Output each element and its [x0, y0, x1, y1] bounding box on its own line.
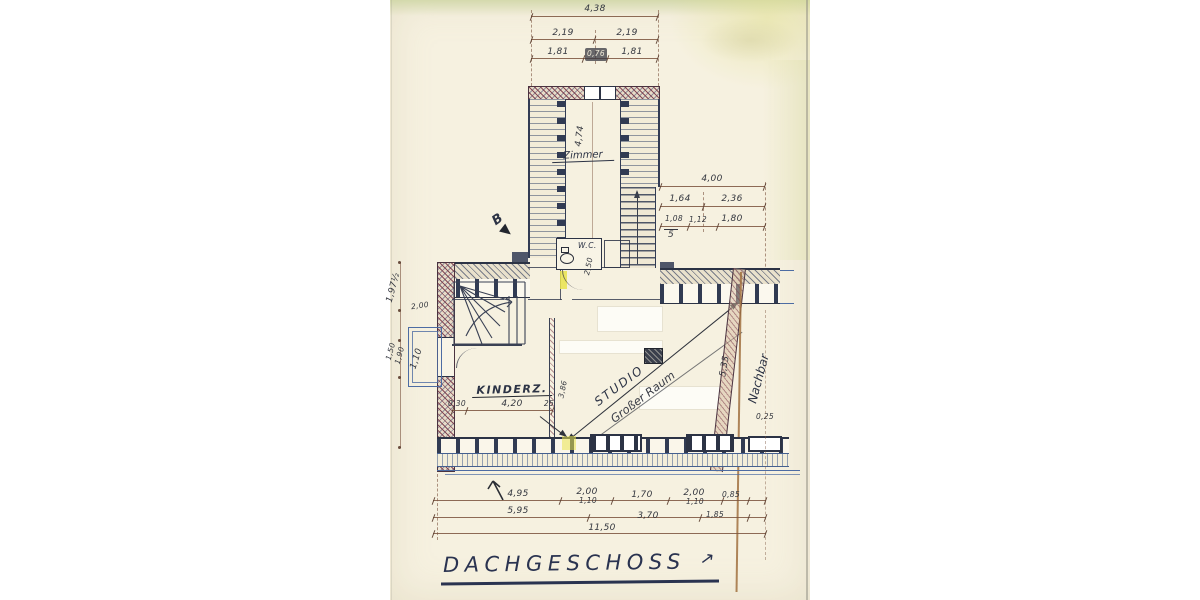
- guide-line: [658, 10, 659, 86]
- stair-stringer-line: [452, 344, 522, 346]
- stair-direction-arrow: [634, 190, 640, 198]
- dim-label: 1,80: [716, 214, 748, 224]
- guide-line: [531, 10, 532, 86]
- interior-wall-line: [528, 299, 562, 300]
- partition-wall: [549, 318, 555, 437]
- dim-label: 4,38: [575, 4, 615, 14]
- wall-line-ext: [780, 303, 794, 304]
- dim-label: 4,95: [498, 489, 538, 499]
- wall-line-ext: [780, 270, 794, 271]
- knee-wall-posts: [621, 101, 629, 185]
- dim-label: 2,19: [607, 28, 647, 38]
- knee-wall-posts: [557, 101, 565, 256]
- guide-line: [437, 474, 438, 540]
- stair-walk-line: [637, 192, 638, 264]
- dim-label: 1,70: [626, 490, 658, 500]
- drawing-title: DACHGESCHOSS: [443, 549, 723, 577]
- dim-label: 4,00: [692, 174, 732, 184]
- winder-stair: [452, 280, 526, 346]
- closet: [604, 240, 630, 268]
- dim-label: 1,10: [680, 498, 710, 506]
- dim-dot: [398, 309, 401, 312]
- dim-dot: [398, 261, 401, 264]
- dim-line-top-total: [531, 16, 658, 17]
- dim-label: 0,76: [584, 50, 608, 58]
- dim-label: 0,85: [716, 491, 746, 499]
- dim-label: 2,19: [543, 28, 583, 38]
- dim-label: 5,95: [498, 506, 538, 516]
- north-wall-hatch-right: [660, 268, 780, 284]
- dim-line-right-total: [660, 186, 765, 187]
- interior-wall-line: [452, 299, 504, 300]
- room-label-wc: W.C.: [578, 241, 597, 250]
- south-window-group: [590, 434, 642, 452]
- dim-label: 1,64: [662, 194, 698, 204]
- toilet-bowl: [560, 253, 574, 264]
- dim-label: 3,70: [630, 511, 666, 521]
- dim-label: 0,30: [446, 400, 468, 408]
- scan-stain: [700, 18, 800, 63]
- north-wall-windows-right: [660, 284, 780, 304]
- wing-window: [584, 86, 616, 100]
- dim-label: 1,85: [700, 511, 730, 519]
- south-window-group: [686, 434, 734, 452]
- dim-note: 5: [664, 229, 678, 240]
- guide-line: [765, 182, 766, 282]
- room-label-zimmer: Zimmer: [552, 149, 614, 163]
- dim-line-right-row3: [660, 226, 765, 227]
- south-roof-rafters: [437, 453, 789, 467]
- interior-wall-line: [572, 299, 662, 300]
- window-mullion: [599, 87, 601, 99]
- dim-label: 1,10: [573, 497, 603, 505]
- scan-tint-right: [762, 60, 810, 260]
- eaves-line: [437, 470, 800, 471]
- dim-line-bottom-total: [433, 533, 766, 534]
- guide-line: [765, 310, 766, 560]
- dim-line-right-row2: [660, 206, 765, 207]
- dim-label: 4,20: [492, 399, 532, 409]
- room-label-kinderzimmer: KINDERZ.: [472, 382, 552, 398]
- dim-line-kinder: [452, 410, 553, 411]
- eaves-line-2: [445, 474, 800, 475]
- dim-label: 1,12: [684, 216, 712, 224]
- dim-label: 2,36: [714, 194, 750, 204]
- dim-line-top-halves: [531, 39, 658, 40]
- whiteout-patch: [598, 307, 662, 331]
- dim-label: 1,81: [538, 47, 578, 57]
- title-arrow: ↗: [699, 548, 716, 570]
- dim-dot: [398, 376, 401, 379]
- dim-label: 1,81: [612, 47, 652, 57]
- dim-label: 11,50: [580, 523, 624, 533]
- dim-dot: [398, 446, 401, 449]
- paper-right-edge: [806, 0, 808, 600]
